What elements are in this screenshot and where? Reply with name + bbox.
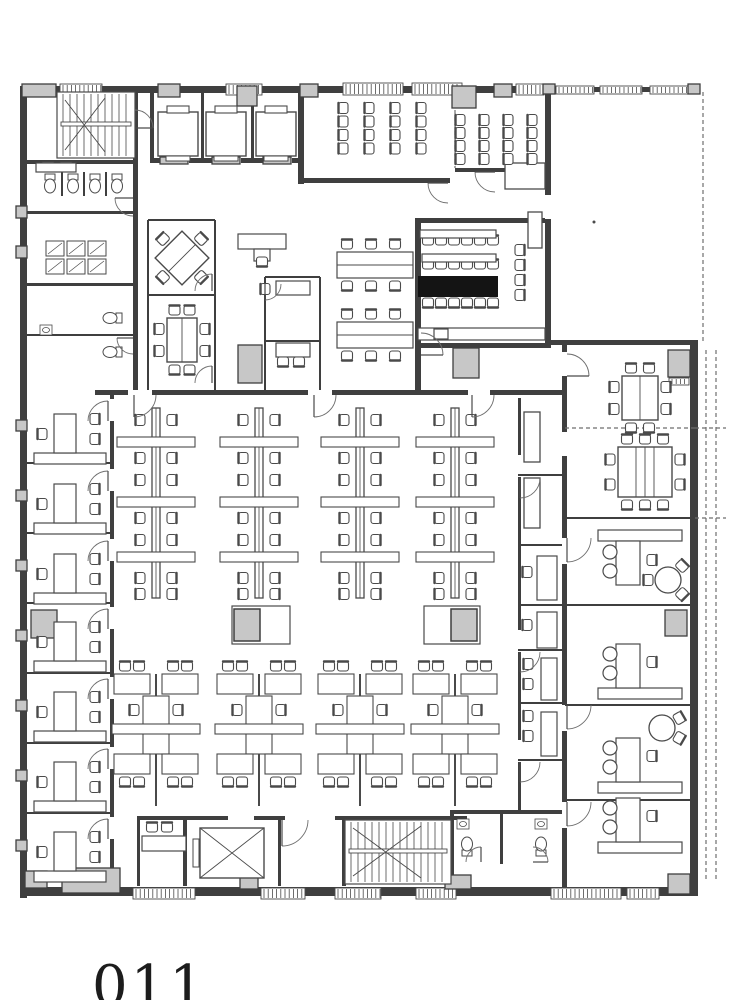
locker-bank <box>46 241 106 274</box>
chair <box>390 281 401 291</box>
column-pier <box>22 84 56 97</box>
wall <box>415 343 551 348</box>
workstation-chair <box>433 777 444 787</box>
office-desk <box>598 688 682 699</box>
chair <box>523 620 533 631</box>
floor-plan-drawing <box>0 0 735 1000</box>
workstation-chair <box>136 589 146 600</box>
column-pier <box>16 420 27 431</box>
window-strip <box>416 888 456 899</box>
workstation-chair <box>239 573 249 584</box>
task-chair <box>603 801 617 815</box>
office-desk <box>598 530 682 541</box>
workstation-chair <box>419 662 430 672</box>
wall <box>453 810 563 814</box>
meeting-chair <box>644 575 654 586</box>
workstation-chair <box>271 777 282 787</box>
chair-grid <box>456 115 538 165</box>
workstation-chair <box>435 535 445 546</box>
elevator-door <box>214 156 238 161</box>
cabinet <box>505 163 545 189</box>
window-strip <box>516 84 544 95</box>
workstation-chair <box>466 475 476 486</box>
training-chair <box>515 275 525 286</box>
workstation-chair <box>182 777 193 787</box>
round-table <box>649 715 675 741</box>
workstation-chair <box>136 573 146 584</box>
workstation-spine <box>321 408 399 600</box>
training-chair <box>417 143 427 154</box>
window-strip <box>551 888 621 899</box>
wall <box>298 178 450 183</box>
chair-grid <box>339 103 427 155</box>
training-chair <box>515 260 525 271</box>
column-pier <box>238 345 262 383</box>
training-chair <box>504 141 514 152</box>
desk-surface <box>217 754 253 774</box>
training-chair <box>339 116 349 127</box>
office-desk <box>34 661 106 672</box>
door-swing <box>567 538 591 562</box>
office-desk-return <box>54 414 76 453</box>
workstation-chair <box>338 662 349 672</box>
column-pier <box>668 350 690 377</box>
private-office-right <box>598 644 682 699</box>
office-chair <box>38 499 48 510</box>
workstation-chair <box>467 777 478 787</box>
office-desk <box>598 842 682 853</box>
workstation-chair <box>340 513 350 524</box>
copier-station <box>232 606 290 644</box>
office-desk <box>34 523 106 534</box>
workstation-chair <box>467 662 478 672</box>
chair-grid <box>515 245 525 301</box>
desk-surface <box>318 674 354 694</box>
door-opening <box>518 455 521 477</box>
workstation-chair <box>239 513 249 524</box>
desk-surface <box>461 754 497 774</box>
training-chair <box>365 143 375 154</box>
meeting-chair <box>169 365 180 375</box>
desk-surface <box>537 556 557 600</box>
guest-chair <box>90 574 100 585</box>
office-desk <box>34 871 106 882</box>
meeting-chair <box>610 382 620 393</box>
furniture-layer <box>34 92 689 884</box>
training-chair <box>528 115 538 126</box>
training-chair <box>480 128 490 139</box>
wall <box>150 90 154 160</box>
wall <box>137 816 140 886</box>
workstation-chair <box>134 662 145 672</box>
desk-surface <box>117 552 195 562</box>
chair <box>390 351 401 361</box>
training-chair <box>528 128 538 139</box>
desk-surface <box>541 658 557 700</box>
workstation-chair <box>371 573 381 584</box>
bench-desk-cluster <box>337 310 413 361</box>
meeting-chair <box>640 500 651 510</box>
wall <box>690 340 698 890</box>
workstation-chair <box>340 589 350 600</box>
desk-surface <box>265 674 301 694</box>
workstation-chair <box>239 475 249 486</box>
round-table-group <box>649 711 686 745</box>
workstation-chair <box>340 475 350 486</box>
desk-surface <box>321 497 399 507</box>
workstation-chair <box>270 589 280 600</box>
door-opening <box>545 195 551 219</box>
desk-surface <box>220 497 298 507</box>
chair <box>524 679 534 690</box>
workstation-chair <box>136 453 146 464</box>
stair <box>345 820 451 884</box>
training-chair <box>417 130 427 141</box>
chair <box>524 731 534 742</box>
training-chair <box>391 103 401 114</box>
chair <box>147 823 158 833</box>
window-strip <box>261 888 305 899</box>
column-pier <box>300 84 318 97</box>
workstation-chair <box>371 513 381 524</box>
door-opening <box>518 740 521 762</box>
column-pier <box>494 84 512 97</box>
workstation-chair <box>324 777 335 787</box>
door-swing <box>475 172 495 192</box>
meeting-table-group <box>137 213 226 302</box>
column-pier <box>16 246 27 258</box>
plan-dot <box>593 221 596 224</box>
training-chair <box>480 154 490 165</box>
round-table <box>655 567 681 593</box>
toilet <box>90 174 101 193</box>
desk-surface <box>36 163 76 172</box>
workstation-chair <box>429 705 439 716</box>
workstation-chair <box>340 535 350 546</box>
workstation-chair <box>466 573 476 584</box>
wall <box>110 395 114 883</box>
training-chair <box>456 115 466 126</box>
wall <box>137 816 285 820</box>
meeting-chair <box>622 500 633 510</box>
workstation-chair <box>466 415 476 426</box>
private-office-left <box>34 554 106 605</box>
column-pier <box>16 840 27 851</box>
workstation-chair <box>435 415 445 426</box>
workstation-chair <box>435 573 445 584</box>
workstation-chair <box>167 415 177 426</box>
workstation-chair <box>239 453 249 464</box>
workstation-chair <box>136 475 146 486</box>
elevator-counterweight <box>215 106 237 113</box>
training-chair <box>504 115 514 126</box>
workstation-chair <box>377 705 387 716</box>
door-opening <box>228 816 254 820</box>
meeting-chair <box>606 454 616 465</box>
workstation-chair <box>466 453 476 464</box>
workstation-chair <box>167 453 177 464</box>
training-chair <box>417 103 427 114</box>
workstation-chair <box>371 475 381 486</box>
private-office-left <box>34 762 106 813</box>
toilet <box>112 174 123 193</box>
chair <box>390 240 401 250</box>
workstation-chair <box>334 705 344 716</box>
desk-surface <box>316 724 404 734</box>
training-chair <box>339 103 349 114</box>
elevator-car <box>158 106 198 161</box>
meeting-chair <box>675 454 685 465</box>
door-swing <box>567 802 591 826</box>
meeting-chair <box>184 306 195 316</box>
wall <box>278 816 281 886</box>
column-pier <box>688 84 700 94</box>
workstation-chair <box>120 777 131 787</box>
training-chair <box>528 141 538 152</box>
desk-surface <box>114 754 150 774</box>
window-strip <box>556 86 594 94</box>
guest-chair <box>647 657 657 668</box>
workstation-chair <box>270 535 280 546</box>
workstation-chair <box>372 662 383 672</box>
desk-surface <box>318 754 354 774</box>
toilet <box>103 347 122 358</box>
workstation-chair <box>472 705 482 716</box>
desk-surface <box>434 329 448 339</box>
workstation-chair <box>372 777 383 787</box>
guest-chair <box>90 762 100 773</box>
meeting-chair <box>169 306 180 316</box>
workstation-chair <box>340 415 350 426</box>
desk-surface <box>416 552 494 562</box>
desk-surface <box>411 724 499 734</box>
chair <box>342 240 353 250</box>
meeting-chair <box>658 500 669 510</box>
guest-chair <box>647 751 657 762</box>
chair <box>366 310 377 320</box>
desk-surface <box>413 674 449 694</box>
workstation-chair <box>340 573 350 584</box>
chair <box>366 240 377 250</box>
workstation-chair <box>433 662 444 672</box>
elevator-door <box>264 156 288 161</box>
training-chair <box>480 141 490 152</box>
workstation-chair <box>435 453 445 464</box>
workstation-chair <box>136 513 146 524</box>
door-swing <box>472 395 494 417</box>
training-chair <box>436 298 447 308</box>
workstation-chair <box>223 777 234 787</box>
task-chair <box>603 647 617 661</box>
meeting-table-group <box>610 364 671 433</box>
office-desk <box>34 453 106 464</box>
door-opening <box>562 538 567 564</box>
desk-surface <box>422 254 496 262</box>
training-chair <box>515 245 525 256</box>
office-desk-return <box>54 832 76 871</box>
workstation-chair <box>167 513 177 524</box>
training-chair <box>391 116 401 127</box>
column-pier <box>31 610 57 638</box>
door-swing <box>567 354 589 376</box>
workstation-chair <box>435 513 445 524</box>
meeting-chair <box>155 324 165 335</box>
office-desk-return <box>54 762 76 801</box>
guest-chair <box>647 555 657 566</box>
training-chair <box>480 115 490 126</box>
workstation-chair <box>237 777 248 787</box>
guest-chair <box>90 852 100 863</box>
workstation-chair <box>338 777 349 787</box>
door-opening <box>128 390 152 395</box>
workstation-chair <box>173 705 183 716</box>
meeting-chair <box>644 423 655 433</box>
door-swing <box>520 762 540 782</box>
window-strip <box>133 888 195 899</box>
workstation-chair <box>481 777 492 787</box>
meeting-chair <box>622 435 633 445</box>
chair <box>523 567 533 578</box>
office-desk <box>34 593 106 604</box>
door-swing <box>567 705 591 729</box>
workstation-chair <box>270 573 280 584</box>
chair <box>342 281 353 291</box>
meeting-chair <box>640 435 651 445</box>
meeting-table-group <box>606 435 685 510</box>
window-strip <box>650 86 688 94</box>
workstation-chair <box>270 415 280 426</box>
guest-chair <box>90 554 100 565</box>
workstation-chair <box>182 662 193 672</box>
training-chair <box>339 130 349 141</box>
desk-surface <box>215 724 303 734</box>
sink <box>40 325 52 335</box>
desk-surface <box>142 836 186 851</box>
workstation-chair <box>168 777 179 787</box>
door-opening <box>562 705 567 731</box>
chair-grid <box>423 298 499 308</box>
training-chair <box>488 298 499 308</box>
office-desk-return <box>54 692 76 731</box>
door-opening <box>562 432 567 456</box>
desk-surface <box>265 754 301 774</box>
meeting-chair <box>610 404 620 415</box>
workstation-chair <box>271 662 282 672</box>
training-chair <box>391 143 401 154</box>
desk-surface <box>537 612 557 648</box>
workstation-chair <box>239 589 249 600</box>
workstation-chair <box>136 535 146 546</box>
desk-surface <box>112 724 200 734</box>
workstation-chair <box>386 662 397 672</box>
workstation-spine <box>117 408 195 600</box>
wall <box>27 211 135 214</box>
door-opening <box>296 816 320 820</box>
workstation-chair <box>466 513 476 524</box>
desk-surface <box>117 497 195 507</box>
wall <box>27 283 135 286</box>
column-pier <box>453 348 479 378</box>
desk-surface <box>321 437 399 447</box>
door-opening <box>308 390 332 395</box>
elevator-door <box>166 156 190 161</box>
chair <box>342 310 353 320</box>
chair <box>390 310 401 320</box>
column-pier <box>158 84 180 97</box>
workstation-chair <box>340 453 350 464</box>
wall <box>500 814 503 864</box>
workstation-spine <box>220 408 298 600</box>
workstation-chair <box>324 662 335 672</box>
training-chair <box>456 154 466 165</box>
cabinet <box>524 478 540 528</box>
workstation-chair <box>270 475 280 486</box>
column-pier <box>16 770 27 781</box>
toilet <box>462 837 473 856</box>
column-pier <box>16 700 27 711</box>
workstation-chair <box>371 589 381 600</box>
desk-surface <box>461 674 497 694</box>
guest-chair <box>90 712 100 723</box>
meeting-chair <box>200 346 210 357</box>
workstation-chair <box>134 777 145 787</box>
toilet <box>103 313 122 324</box>
elevator-car <box>256 106 296 161</box>
training-chair <box>449 298 460 308</box>
stair-landing-rail <box>61 122 131 126</box>
private-office-right <box>598 798 682 853</box>
elevator-car <box>206 106 246 161</box>
desk-surface <box>416 497 494 507</box>
door-opening <box>110 469 114 491</box>
workstation-chair <box>167 589 177 600</box>
office-desk <box>598 782 682 793</box>
workstation-pod <box>215 662 303 807</box>
office-chair <box>38 569 48 580</box>
workstation-chair <box>130 705 140 716</box>
wall <box>415 218 547 223</box>
training-chair <box>462 298 473 308</box>
guest-chair <box>90 484 100 495</box>
workstation-chair <box>167 573 177 584</box>
training-chair <box>423 298 434 308</box>
sink <box>535 819 547 829</box>
meeting-chair <box>606 479 616 490</box>
door-opening <box>562 802 567 828</box>
wall <box>298 90 304 184</box>
meeting-chair <box>626 423 637 433</box>
workstation-chair <box>419 777 430 787</box>
training-chair <box>365 130 375 141</box>
workstation-chair <box>285 777 296 787</box>
sheet-number: 011 <box>92 956 208 1000</box>
cabinet <box>524 412 540 462</box>
training-chair <box>515 290 525 301</box>
office-desk-return <box>54 484 76 523</box>
desk-surface <box>114 674 150 694</box>
door-opening <box>110 677 114 699</box>
workstation-chair <box>270 453 280 464</box>
workstation-chair <box>167 535 177 546</box>
chair <box>342 351 353 361</box>
private-office-left <box>34 484 106 535</box>
desk-surface <box>366 754 402 774</box>
office-chair <box>38 637 48 648</box>
door-opening <box>110 607 114 629</box>
desk-surface <box>276 281 310 295</box>
office-desk-return <box>616 644 640 688</box>
workstation-chair <box>168 662 179 672</box>
